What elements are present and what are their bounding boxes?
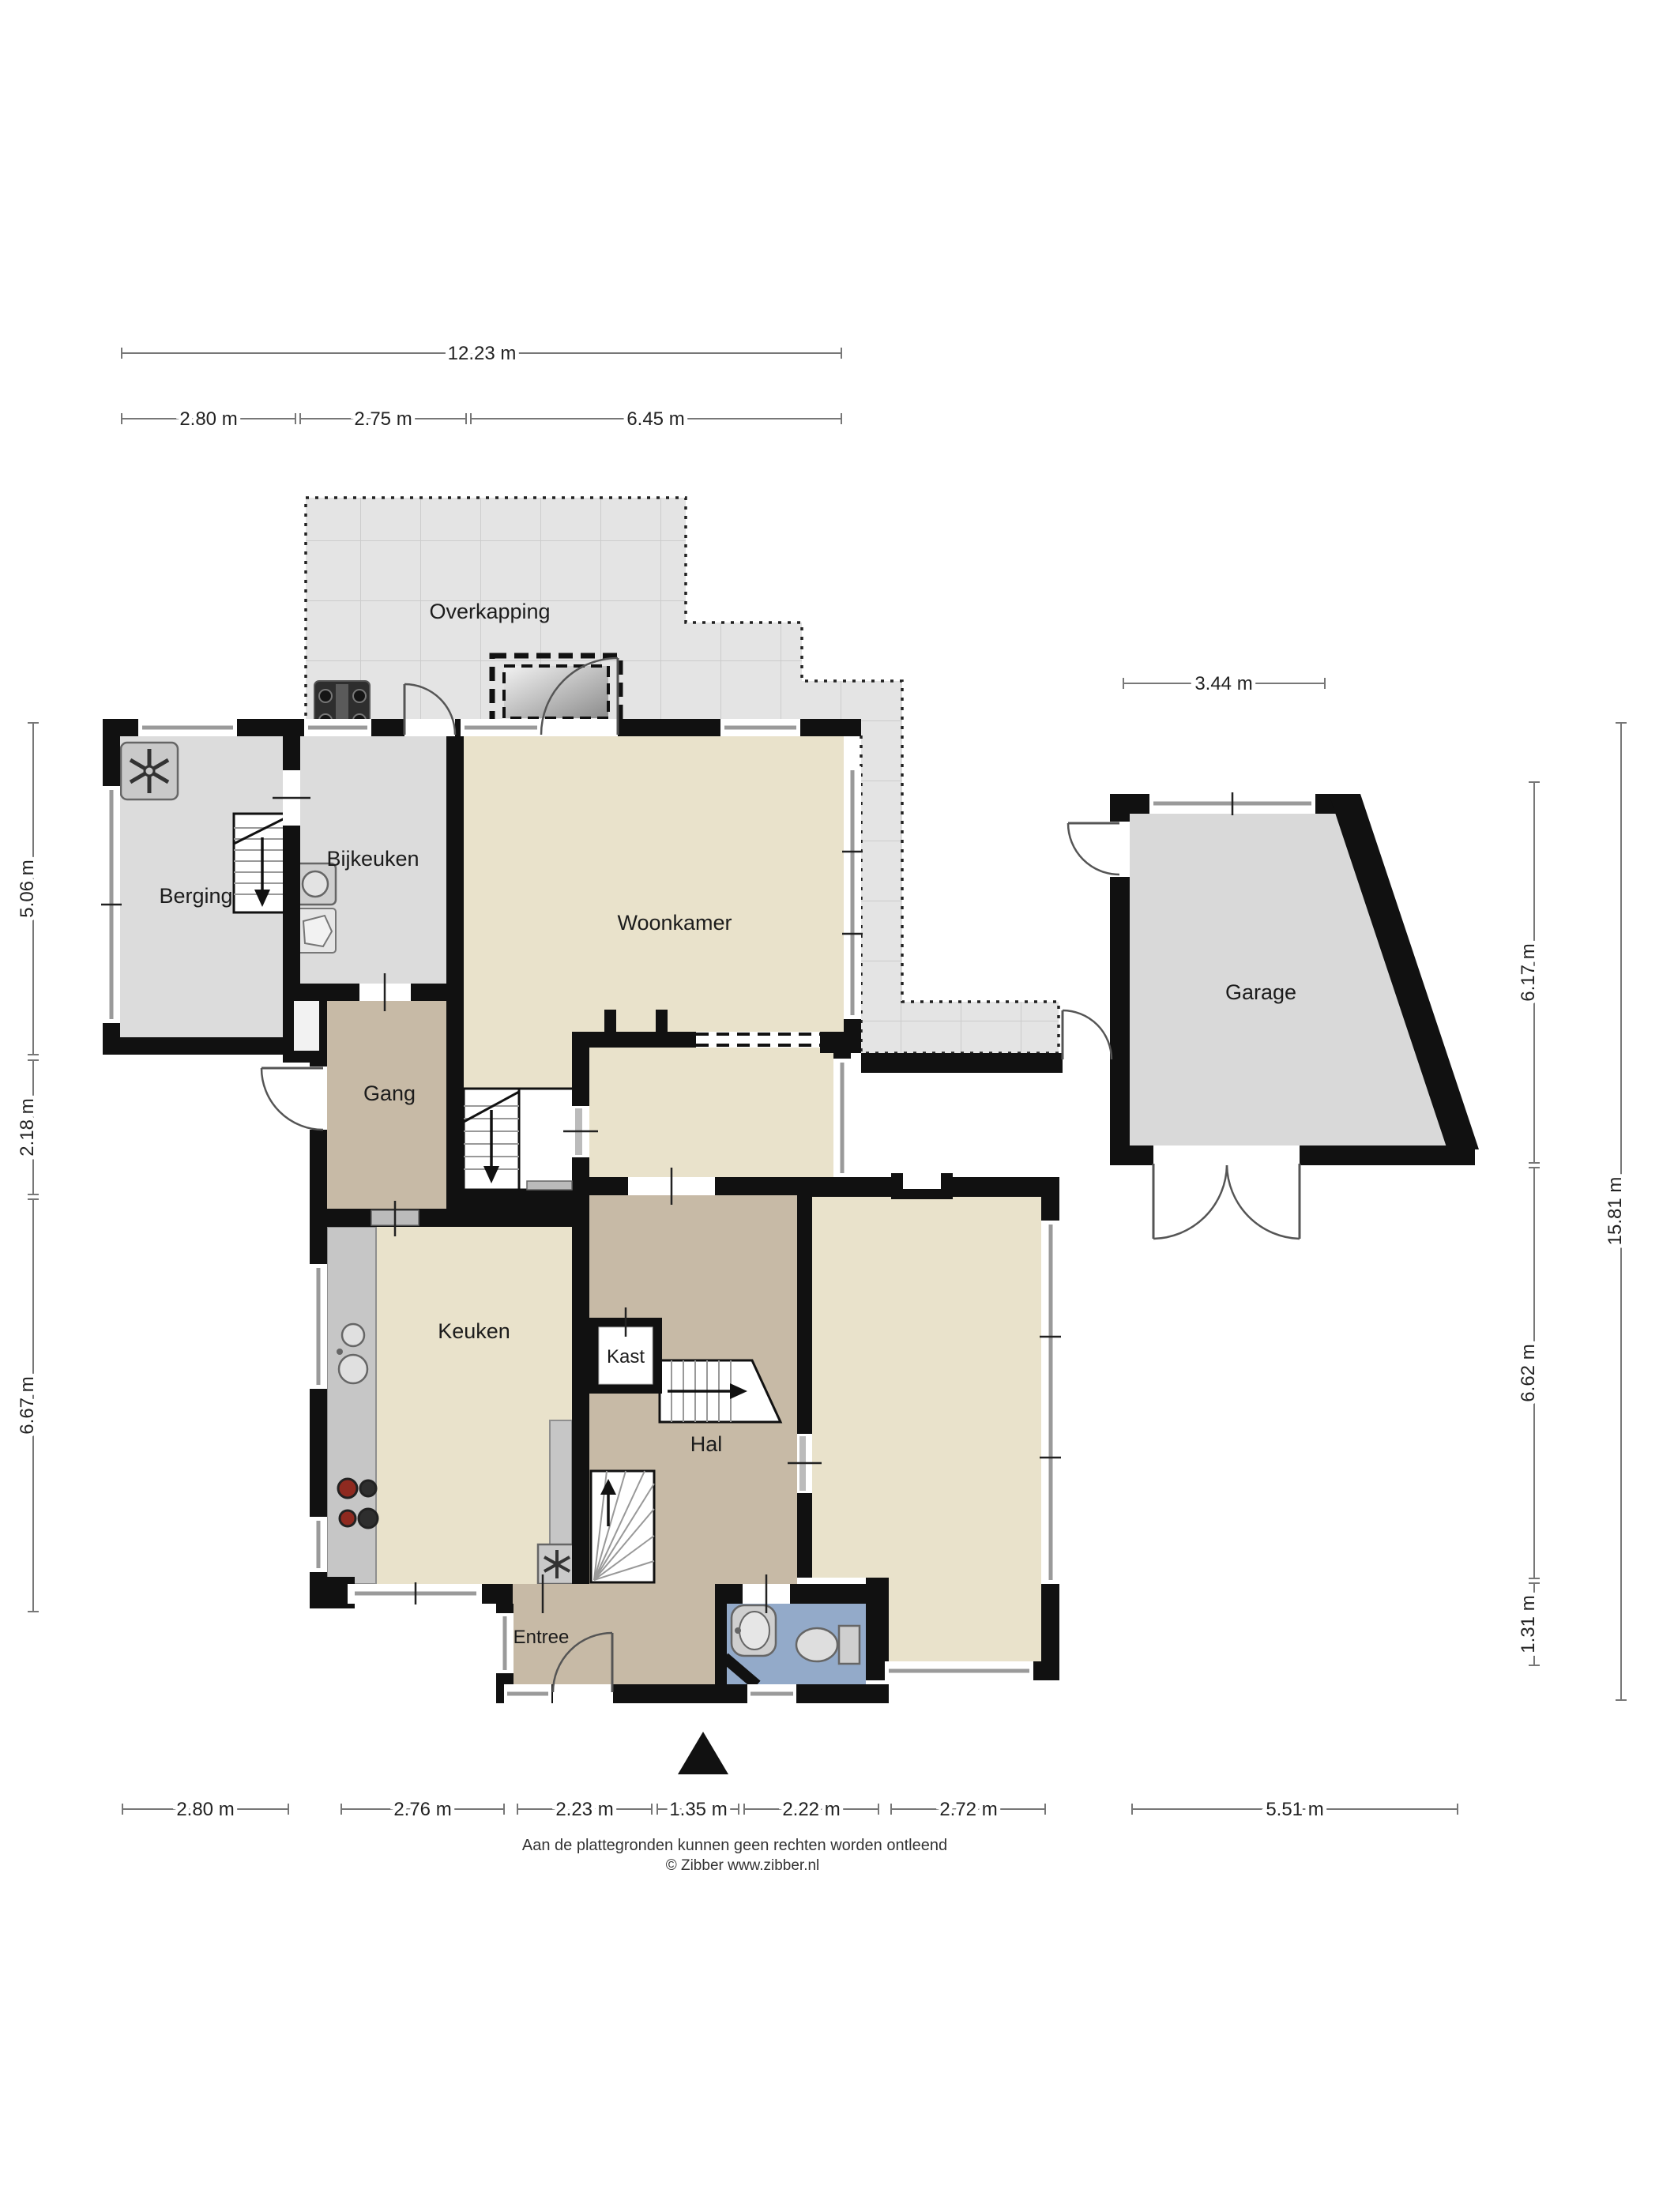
dim-garage-top: 3.44 m [1123, 673, 1325, 694]
svg-text:5.51 m: 5.51 m [1266, 1799, 1323, 1820]
svg-text:1.31 m: 1.31 m [1518, 1595, 1539, 1653]
label-keuken: Keuken [438, 1319, 510, 1343]
label-gang: Gang [363, 1082, 416, 1105]
svg-text:6.45 m: 6.45 m [626, 408, 684, 430]
kitchen-counter [327, 1227, 376, 1584]
label-berging: Berging [159, 884, 232, 908]
dim-right-inner: 6.17 m 6.62 m 1.31 m [1518, 782, 1540, 1665]
dim-left-column: 5.06 m 2.18 m 6.67 m [17, 723, 39, 1612]
label-bijkeuken: Bijkeuken [326, 847, 419, 871]
dim-right-outer: 15.81 m [1604, 723, 1627, 1700]
label-overkapping: Overkapping [429, 600, 550, 623]
svg-text:2.80 m: 2.80 m [176, 1799, 234, 1820]
label-garage: Garage [1225, 980, 1296, 1004]
dim-top-row: 2.80 m 2.75 m 6.45 m [122, 408, 841, 430]
north-arrow-icon [678, 1732, 728, 1774]
kitchen-counter-right [550, 1420, 572, 1544]
label-hal: Hal [690, 1432, 723, 1456]
svg-text:2.18 m: 2.18 m [17, 1098, 38, 1156]
laundry-sink-icon [295, 908, 336, 953]
stairs-gang [464, 1089, 581, 1190]
footer-credit: © Zibber www.zibber.nl [666, 1857, 820, 1874]
toilet-icon [796, 1626, 860, 1664]
label-entree: Entree [513, 1627, 570, 1648]
floorplan-canvas: Overkapping Berging Bijkeuken Woonkamer … [0, 0, 1659, 2212]
svg-text:2.23 m: 2.23 m [555, 1799, 613, 1820]
svg-text:3.44 m: 3.44 m [1194, 673, 1252, 694]
chimney-notch-2 [903, 1173, 941, 1189]
dim-bottom-row: 2.80 m 2.76 m 2.23 m 1.35 m 2.22 m 2.72 … [122, 1799, 1458, 1820]
svg-text:6.67 m: 6.67 m [17, 1376, 38, 1434]
dashed-opening [696, 1032, 820, 1048]
chimney-notch-1 [616, 1010, 656, 1032]
svg-text:1.35 m: 1.35 m [669, 1799, 727, 1820]
label-kast: Kast [607, 1346, 645, 1367]
svg-text:2.22 m: 2.22 m [782, 1799, 840, 1820]
svg-text:5.06 m: 5.06 m [17, 860, 38, 917]
room-woonkamer [464, 736, 844, 1048]
stairs-berging [234, 814, 291, 912]
ventilation-icon [121, 743, 178, 799]
svg-text:12.23 m: 12.23 m [448, 343, 517, 364]
dim-top-total: 12.23 m [122, 343, 841, 364]
footer-disclaimer: Aan de plattegronden kunnen geen rechten… [522, 1837, 947, 1854]
svg-text:2.76 m: 2.76 m [393, 1799, 451, 1820]
svg-text:15.81 m: 15.81 m [1604, 1177, 1626, 1246]
svg-text:2.80 m: 2.80 m [179, 408, 237, 430]
svg-text:2.75 m: 2.75 m [354, 408, 412, 430]
svg-text:2.72 m: 2.72 m [939, 1799, 997, 1820]
svg-text:6.62 m: 6.62 m [1518, 1344, 1539, 1401]
label-woonkamer: Woonkamer [617, 911, 732, 935]
svg-text:6.17 m: 6.17 m [1518, 943, 1539, 1001]
stairs-hal-winder [591, 1471, 654, 1582]
wc-basin-icon [732, 1605, 776, 1656]
room-mini-wc [294, 1001, 319, 1051]
floorplan-page: Overkapping Berging Bijkeuken Woonkamer … [0, 0, 1659, 2212]
